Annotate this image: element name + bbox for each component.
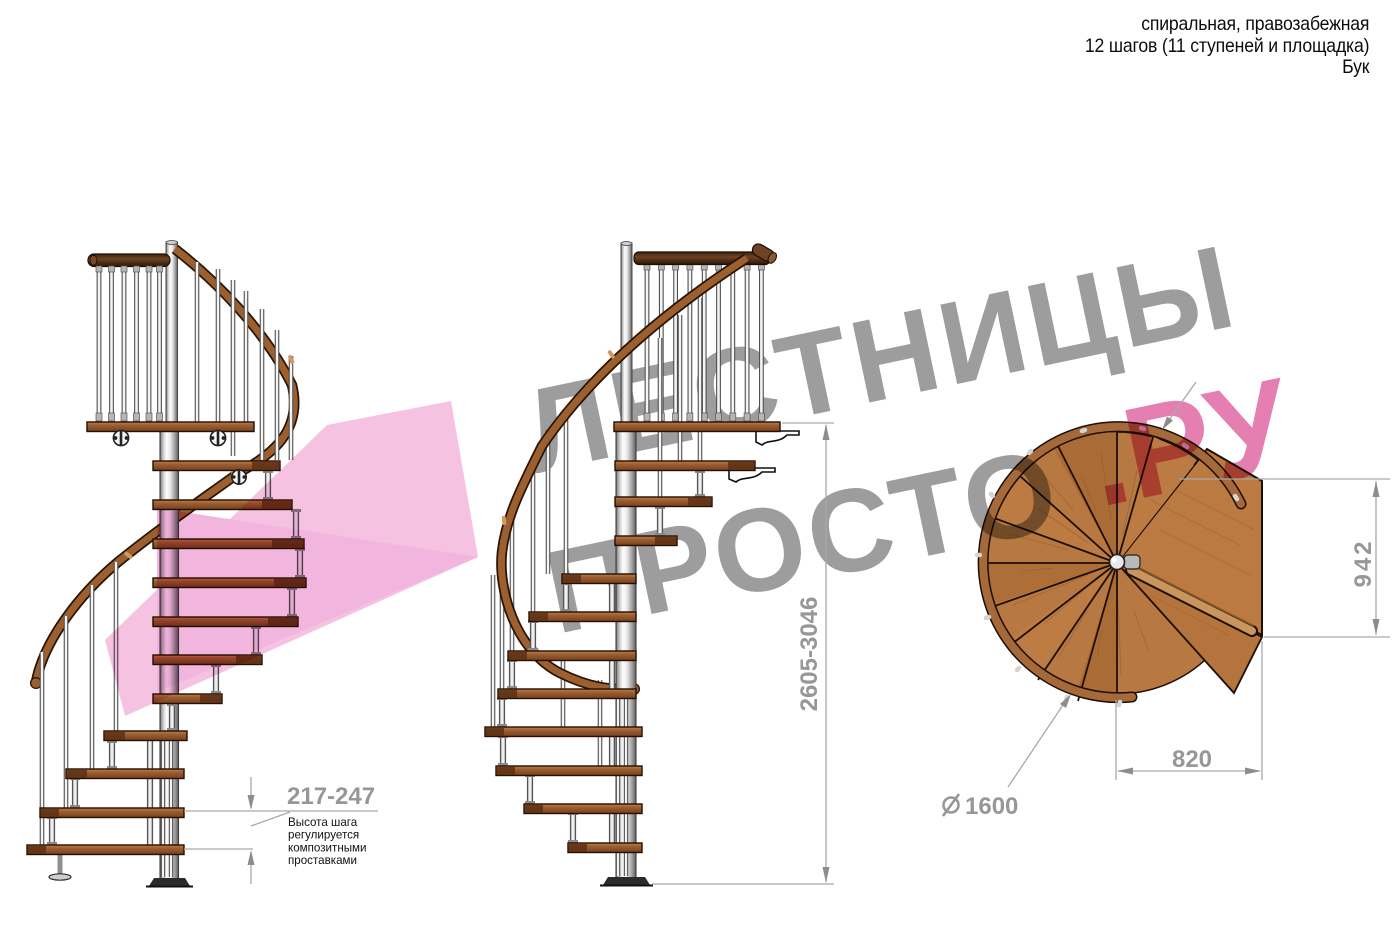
svg-text:проставками: проставками (288, 854, 357, 867)
svg-text:2605-3046: 2605-3046 (796, 597, 823, 712)
svg-text:Высота шага: Высота шага (288, 816, 358, 829)
svg-text:820: 820 (1172, 746, 1212, 773)
svg-text:композитными: композитными (288, 841, 367, 854)
svg-text:1600: 1600 (965, 793, 1018, 820)
svg-text:регулируется: регулируется (288, 829, 359, 842)
svg-text:217-247: 217-247 (287, 783, 375, 810)
svg-text:942: 942 (1350, 538, 1377, 587)
